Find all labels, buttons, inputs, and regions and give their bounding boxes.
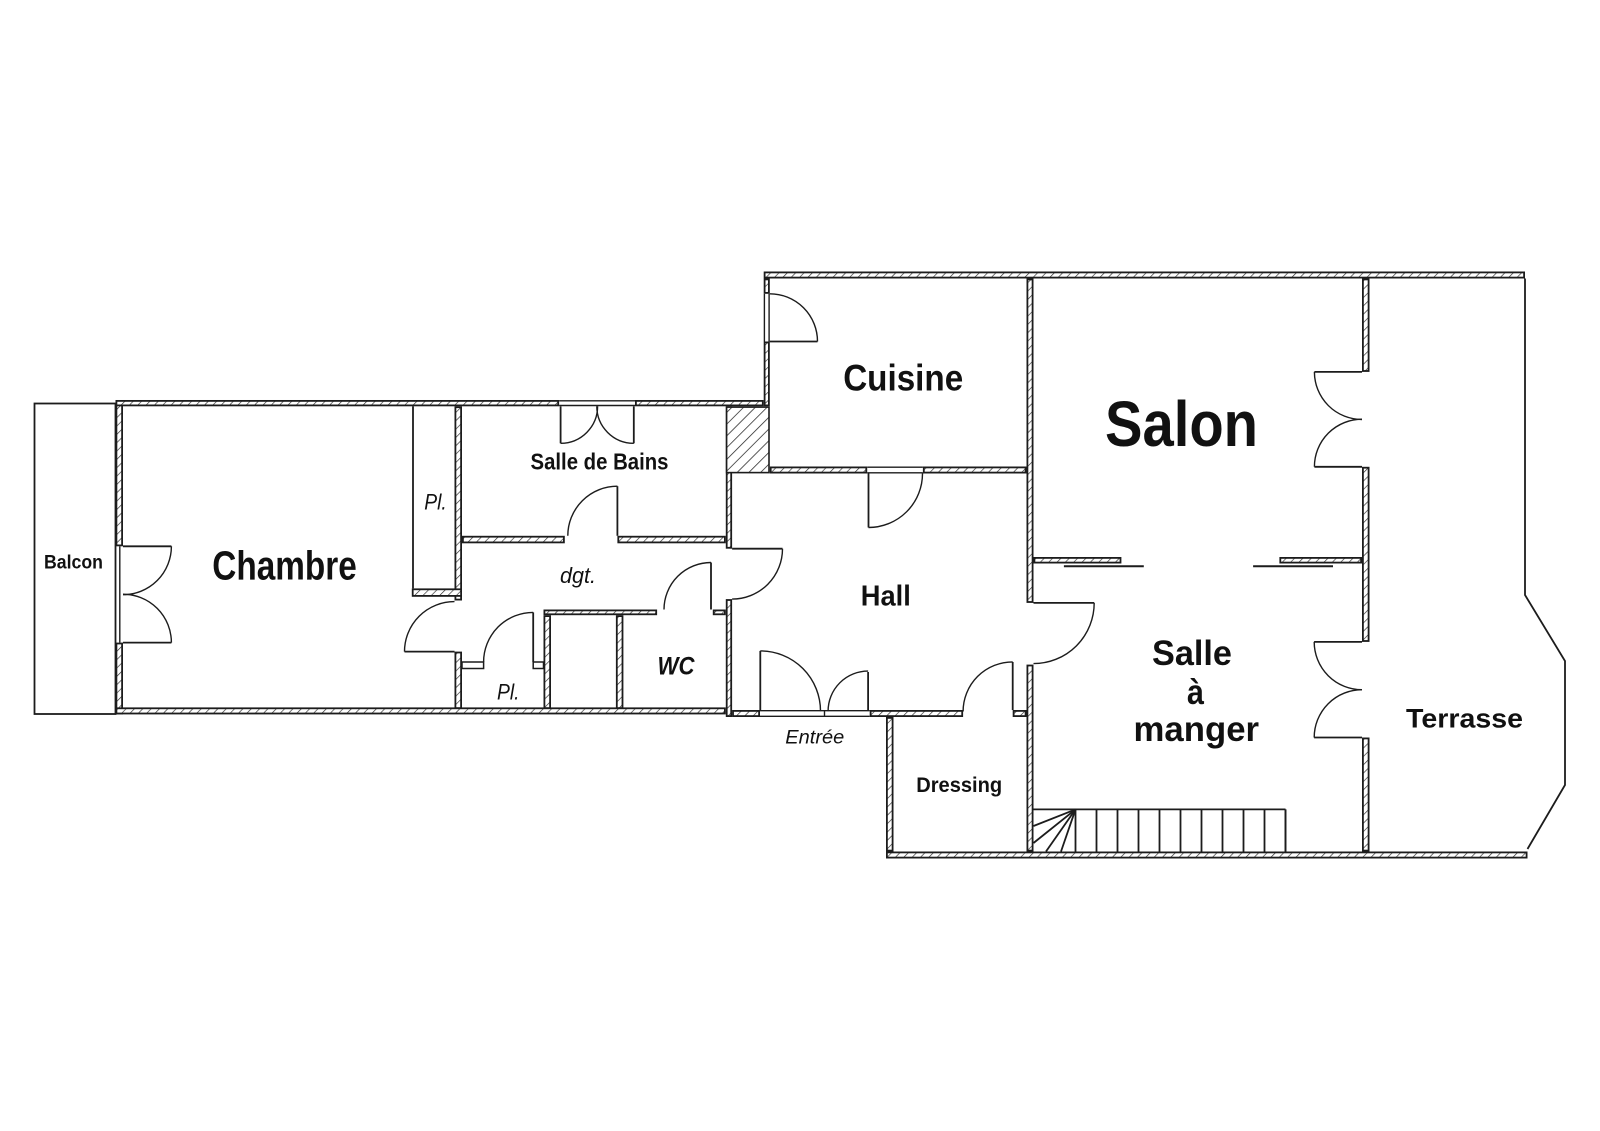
svg-text:Salle de Bains: Salle de Bains xyxy=(531,449,669,475)
svg-text:Chambre: Chambre xyxy=(212,543,357,589)
svg-text:Cuisine: Cuisine xyxy=(843,358,963,399)
svg-text:Entrée: Entrée xyxy=(785,727,844,749)
svg-text:Salle: Salle xyxy=(1152,633,1232,673)
svg-text:manger: manger xyxy=(1134,709,1260,749)
svg-text:Salon: Salon xyxy=(1105,388,1258,460)
svg-text:Pl.: Pl. xyxy=(424,490,447,515)
svg-text:à: à xyxy=(1187,672,1204,712)
svg-text:WC: WC xyxy=(658,652,696,680)
svg-text:dgt.: dgt. xyxy=(560,563,596,588)
svg-text:Pl.: Pl. xyxy=(497,680,520,705)
svg-text:Terrasse: Terrasse xyxy=(1406,704,1523,734)
svg-text:Balcon: Balcon xyxy=(44,553,103,574)
svg-text:Dressing: Dressing xyxy=(916,773,1002,797)
svg-text:Hall: Hall xyxy=(861,581,911,613)
